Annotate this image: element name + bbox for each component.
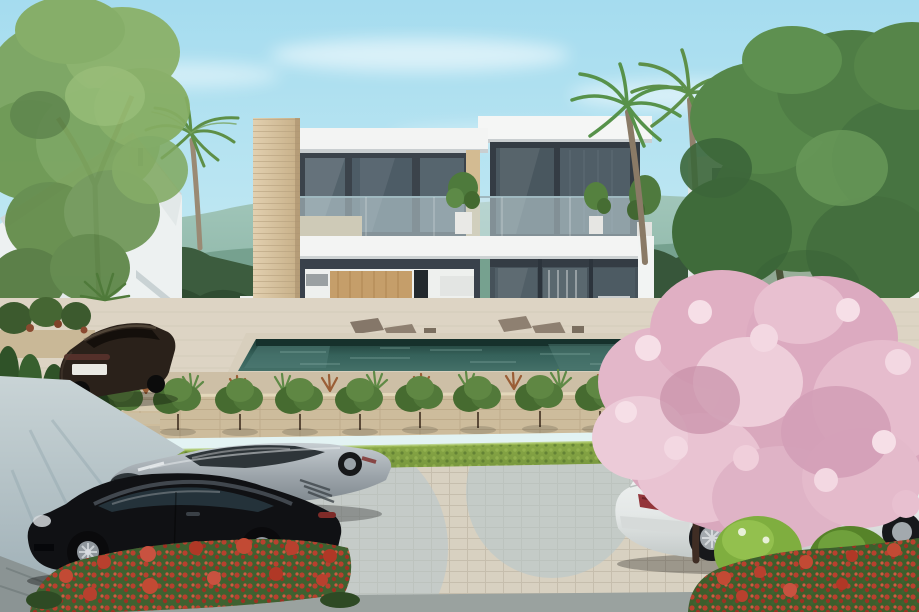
pool (226, 333, 662, 376)
villa-roof-right (478, 116, 652, 142)
architectural-rendering (0, 0, 919, 612)
